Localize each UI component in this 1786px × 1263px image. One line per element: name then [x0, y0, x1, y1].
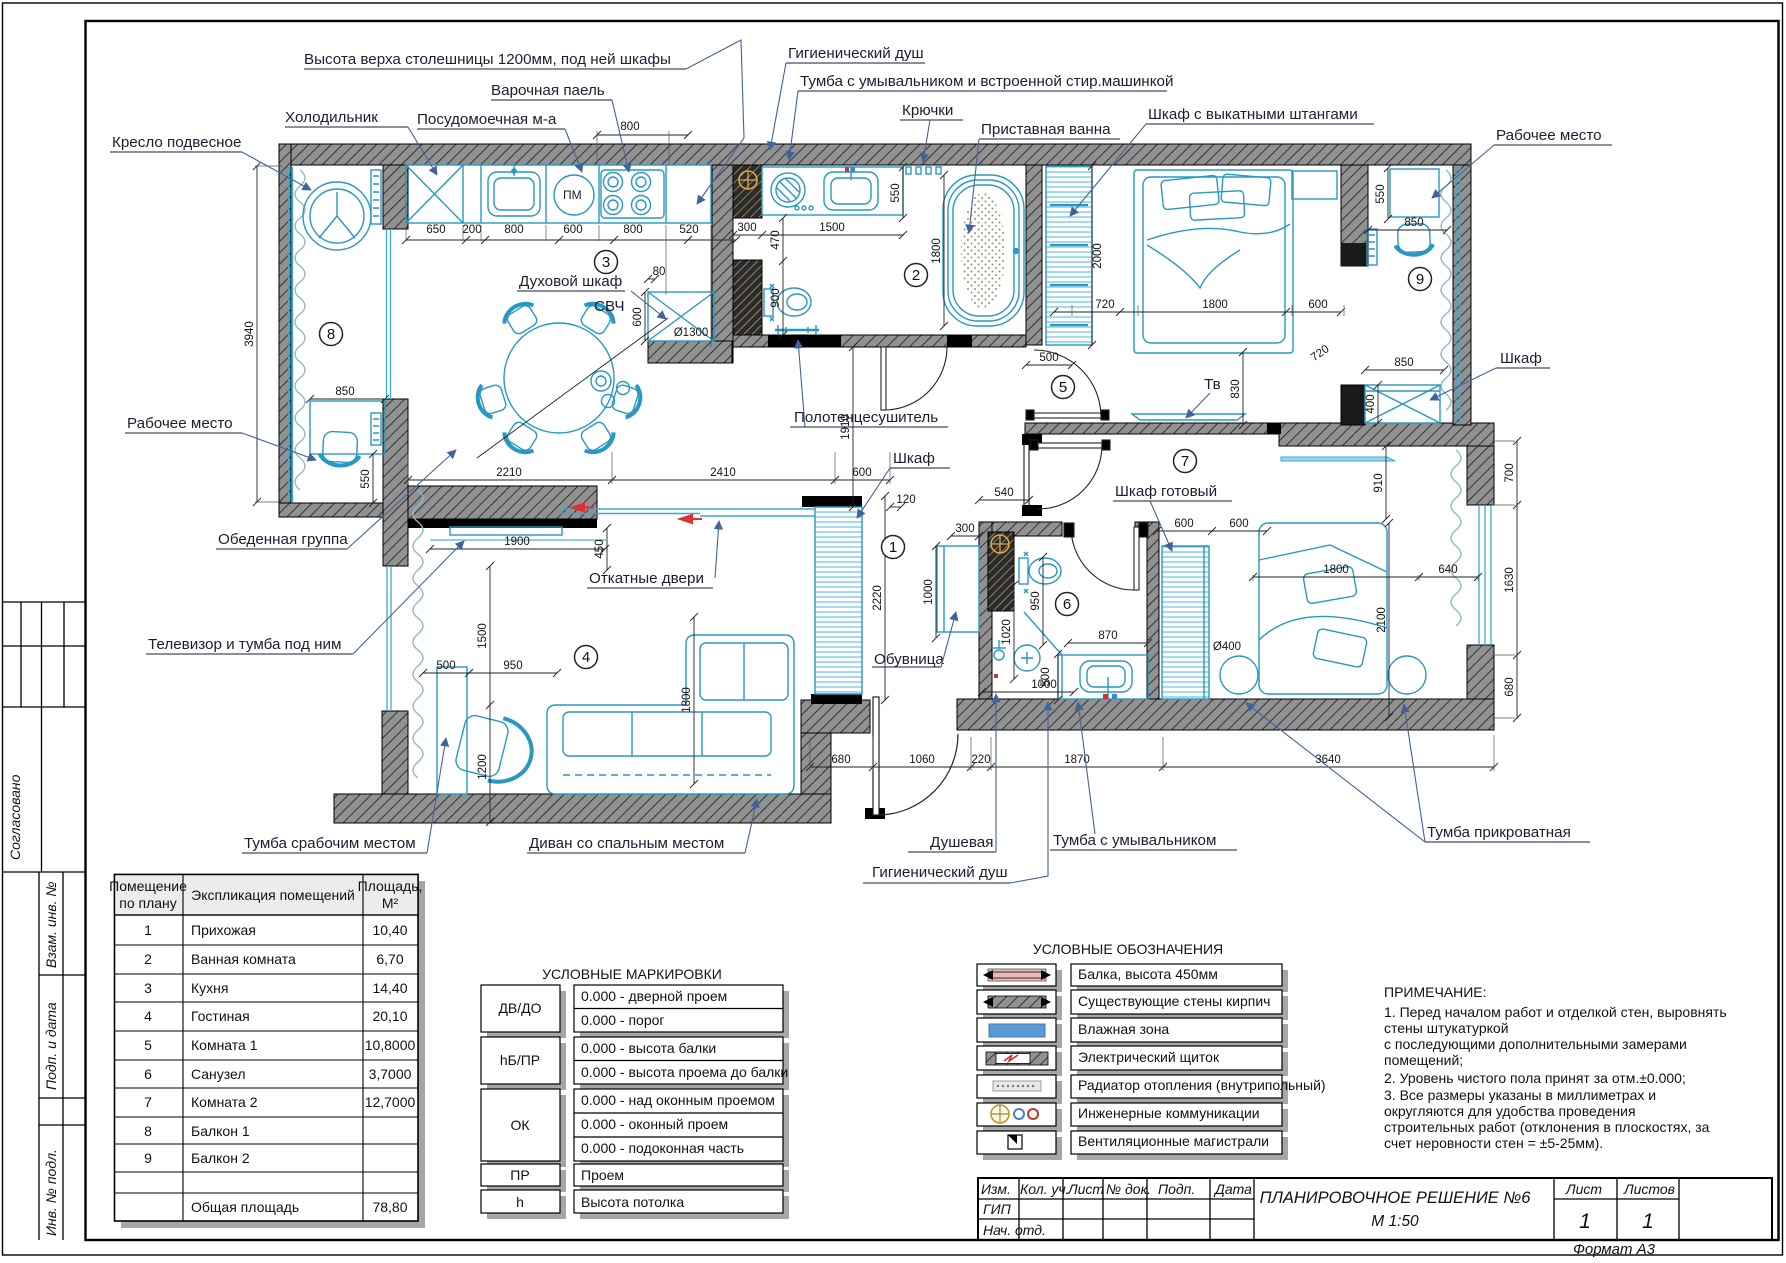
svg-text:УСЛОВНЫЕ МАРКИРОВКИ: УСЛОВНЫЕ МАРКИРОВКИ — [542, 966, 722, 982]
svg-text:3. Все размеры указаны в: 3. Все размеры указаны в миллиметрах и — [1384, 1087, 1656, 1103]
svg-text:8: 8 — [144, 1123, 152, 1139]
svg-text:800: 800 — [504, 224, 523, 236]
svg-text:с последующими дополнительными: с последующими дополнительными замерами — [1384, 1036, 1687, 1052]
svg-text:12,7000: 12,7000 — [365, 1094, 416, 1110]
svg-text:6,70: 6,70 — [376, 951, 403, 967]
svg-text:680: 680 — [831, 754, 850, 766]
svg-text:Дата: Дата — [1213, 1181, 1252, 1197]
svg-text:Влажная зона: Влажная зона — [1078, 1021, 1169, 1037]
svg-text:600: 600 — [1174, 518, 1193, 530]
svg-text:8: 8 — [327, 326, 335, 343]
svg-text:800: 800 — [623, 224, 642, 236]
svg-text:550: 550 — [1375, 184, 1387, 203]
svg-text:Диван со спальным местом: Диван со спальным местом — [529, 835, 724, 852]
svg-text:Подп. и дата: Подп. и дата — [43, 1002, 59, 1090]
svg-text:7: 7 — [1181, 453, 1189, 470]
svg-text:0.000 - дверной проем: 0.000 - дверной проем — [581, 988, 727, 1004]
svg-text:Высота потолка: Высота потолка — [581, 1194, 684, 1210]
svg-text:3940: 3940 — [244, 321, 256, 347]
svg-text:600: 600 — [632, 307, 644, 326]
svg-text:Комната 1: Комната 1 — [191, 1037, 258, 1053]
svg-text:6: 6 — [144, 1066, 152, 1082]
svg-text:Гигиенический душ: Гигиенический душ — [872, 864, 1008, 881]
svg-text:720: 720 — [1095, 299, 1114, 311]
svg-text:Ø1300: Ø1300 — [674, 327, 709, 339]
svg-text:hБ/ПР: hБ/ПР — [500, 1052, 540, 1068]
svg-text:Шкаф с выкатными штангами: Шкаф с выкатными штангами — [1148, 106, 1358, 123]
svg-text:Тумба прикроватная: Тумба прикроватная — [1427, 824, 1571, 841]
svg-text:20,10: 20,10 — [372, 1008, 407, 1024]
svg-text:ПЛАНИРОВОЧНОЕ РЕШЕНИЕ №6: ПЛАНИРОВОЧНОЕ РЕШЕНИЕ №6 — [1260, 1189, 1532, 1207]
svg-text:1: 1 — [889, 539, 897, 556]
svg-text:Духовой шкаф: Духовой шкаф — [519, 273, 622, 290]
svg-text:600: 600 — [1308, 299, 1327, 311]
svg-text:1000: 1000 — [923, 579, 935, 605]
svg-text:ПРИМЕЧАНИЕ:: ПРИМЕЧАНИЕ: — [1384, 984, 1487, 1000]
svg-text:600: 600 — [852, 467, 871, 479]
svg-text:540: 540 — [994, 487, 1013, 499]
svg-text:600: 600 — [1229, 518, 1248, 530]
svg-text:78,80: 78,80 — [372, 1199, 407, 1215]
svg-text:Обувница: Обувница — [874, 651, 944, 668]
svg-text:Согласовано: Согласовано — [7, 774, 23, 860]
svg-text:Радиатор отопления (внутриполь: Радиатор отопления (внутрипольный) — [1078, 1077, 1326, 1093]
svg-text:520: 520 — [679, 224, 698, 236]
svg-text:Прихожая: Прихожая — [191, 922, 256, 938]
svg-text:0.000 - высота балки: 0.000 - высота балки — [581, 1040, 716, 1056]
svg-text:850: 850 — [1404, 217, 1423, 229]
svg-text:1200: 1200 — [477, 754, 489, 780]
svg-text:Лист: Лист — [1565, 1181, 1602, 1197]
svg-text:Существующие стены кирпич: Существующие стены кирпич — [1078, 993, 1270, 1009]
svg-text:Площадь,: Площадь, — [358, 878, 423, 894]
svg-text:Тумба с умывальником: Тумба с умывальником — [1053, 832, 1216, 849]
svg-text:Общая площадь: Общая площадь — [191, 1199, 299, 1215]
svg-text:1500: 1500 — [819, 222, 845, 234]
svg-text:9: 9 — [144, 1150, 152, 1166]
svg-text:10,40: 10,40 — [372, 922, 407, 938]
svg-text:1800: 1800 — [1323, 564, 1349, 576]
svg-text:Электрический щиток: Электрический щиток — [1078, 1049, 1220, 1065]
svg-text:2220: 2220 — [872, 585, 884, 611]
svg-text:1800: 1800 — [931, 238, 943, 264]
svg-text:2000: 2000 — [1092, 243, 1104, 269]
svg-text:6: 6 — [1063, 596, 1071, 613]
svg-text:640: 640 — [1438, 564, 1457, 576]
svg-text:1: 1 — [1642, 1210, 1654, 1233]
svg-text:1: 1 — [1579, 1210, 1591, 1233]
svg-text:Вентиляционные магистрали: Вентиляционные магистрали — [1078, 1133, 1269, 1149]
svg-text:Холодильник: Холодильник — [285, 109, 378, 126]
svg-text:Гостиная: Гостиная — [191, 1008, 250, 1024]
svg-text:300: 300 — [955, 523, 974, 535]
svg-text:Листов: Листов — [1623, 1181, 1675, 1197]
svg-text:14,40: 14,40 — [372, 980, 407, 996]
svg-text:1900: 1900 — [504, 536, 530, 548]
svg-text:Лист: Лист — [1067, 1181, 1104, 1197]
svg-text:стены штукатуркой: стены штукатуркой — [1384, 1020, 1509, 1036]
svg-text:650: 650 — [426, 224, 445, 236]
svg-text:Шкаф готовый: Шкаф готовый — [1115, 483, 1217, 500]
svg-text:Комната 2: Комната 2 — [191, 1094, 258, 1110]
svg-text:Кол. уч.: Кол. уч. — [1020, 1181, 1070, 1197]
svg-text:950: 950 — [503, 660, 522, 672]
svg-text:1630: 1630 — [1504, 567, 1516, 593]
svg-text:ПР: ПР — [510, 1167, 529, 1183]
svg-text:800: 800 — [620, 121, 639, 133]
svg-text:900: 900 — [770, 288, 782, 307]
svg-text:счет неровности стен = ±5-25мм: счет неровности стен = ±5-25мм). — [1384, 1135, 1603, 1151]
svg-text:7: 7 — [144, 1094, 152, 1110]
svg-text:700: 700 — [1504, 463, 1516, 482]
svg-text:Кресло подвесное: Кресло подвесное — [112, 134, 241, 151]
svg-text:Инженерные коммуникации: Инженерные коммуникации — [1078, 1105, 1260, 1121]
svg-text:220: 220 — [971, 754, 990, 766]
svg-text:Рабочее место: Рабочее место — [127, 415, 233, 432]
svg-text:Приставная ванна: Приставная ванна — [981, 121, 1111, 138]
svg-text:по плану: по плану — [119, 895, 177, 911]
svg-text:2100: 2100 — [1376, 607, 1388, 633]
svg-text:Нач. отд.: Нач. отд. — [983, 1222, 1046, 1238]
svg-text:950: 950 — [1030, 591, 1042, 610]
svg-text:Тв: Тв — [1204, 376, 1221, 393]
svg-text:680: 680 — [1504, 677, 1516, 696]
svg-text:3,7000: 3,7000 — [369, 1066, 412, 1082]
svg-text:Шкаф: Шкаф — [893, 450, 935, 467]
svg-text:2210: 2210 — [496, 467, 522, 479]
svg-text:1800: 1800 — [1202, 299, 1228, 311]
svg-text:4: 4 — [144, 1008, 152, 1024]
svg-text:2: 2 — [912, 267, 920, 284]
svg-text:830: 830 — [1230, 379, 1242, 398]
svg-text:Ванная комната: Ванная комната — [191, 951, 296, 967]
svg-text:3: 3 — [602, 254, 610, 271]
svg-text:Шкаф: Шкаф — [1500, 350, 1542, 367]
svg-text:Балка, высота 450мм: Балка, высота 450мм — [1078, 966, 1218, 982]
svg-text:2: 2 — [144, 951, 152, 967]
svg-text:910: 910 — [1373, 473, 1385, 492]
svg-text:200: 200 — [462, 224, 481, 236]
svg-text:Откатные двери: Откатные двери — [589, 570, 704, 587]
svg-text:Душевая: Душевая — [930, 834, 993, 851]
svg-text:0.000 - порог: 0.000 - порог — [581, 1012, 665, 1028]
svg-text:400: 400 — [1365, 394, 1377, 413]
svg-text:ДВ/ДО: ДВ/ДО — [498, 1000, 541, 1016]
svg-text:Рабочее место: Рабочее место — [1496, 127, 1602, 144]
svg-text:ОК: ОК — [510, 1117, 530, 1133]
svg-text:М²: М² — [382, 895, 399, 911]
svg-text:Санузел: Санузел — [191, 1066, 246, 1082]
svg-text:Кухня: Кухня — [191, 980, 228, 996]
svg-text:550: 550 — [360, 469, 372, 488]
svg-text:Обеденная группа: Обеденная группа — [218, 531, 348, 548]
svg-text:Ø400: Ø400 — [1213, 641, 1241, 653]
svg-text:120: 120 — [896, 494, 915, 506]
svg-text:0.000 - высота проема до балки: 0.000 - высота проема до балки — [581, 1064, 788, 1080]
svg-text:Подп.: Подп. — [1158, 1181, 1195, 1197]
svg-text:Телевизор и тумба под ним: Телевизор и тумба под ним — [148, 636, 341, 653]
svg-text:850: 850 — [1394, 357, 1413, 369]
svg-text:Балкон 2: Балкон 2 — [191, 1150, 250, 1166]
svg-text:850: 850 — [335, 386, 354, 398]
svg-text:Тумба с умывальником и встроен: Тумба с умывальником и встроенной стир.м… — [800, 73, 1173, 90]
svg-text:2. Уровень чистого пола принят: 2. Уровень чистого пола принят за отм.±0… — [1384, 1070, 1686, 1086]
svg-text:300: 300 — [737, 222, 756, 234]
svg-text:h: h — [516, 1194, 524, 1210]
svg-text:Балкон 1: Балкон 1 — [191, 1123, 250, 1139]
svg-text:3: 3 — [144, 980, 152, 996]
svg-text:Высота верха столешницы 1200мм: Высота верха столешницы 1200мм, под ней … — [304, 51, 671, 68]
svg-text:Крючки: Крючки — [902, 102, 953, 119]
svg-text:помещений;: помещений; — [1384, 1052, 1463, 1068]
svg-text:0.000 - подоконная часть: 0.000 - подоконная часть — [581, 1140, 744, 1156]
svg-text:450: 450 — [594, 539, 606, 558]
svg-text:Варочная паель: Варочная паель — [491, 82, 605, 99]
svg-text:Полотенцесушитель: Полотенцесушитель — [794, 409, 938, 426]
svg-text:Проем: Проем — [581, 1167, 624, 1183]
svg-text:500: 500 — [1039, 352, 1058, 364]
svg-text:УСЛОВНЫЕ ОБОЗНАЧЕНИЯ: УСЛОВНЫЕ ОБОЗНАЧЕНИЯ — [1033, 941, 1223, 957]
svg-text:строительных работ (отклонения: строительных работ (отклонения в плоскос… — [1384, 1119, 1710, 1135]
svg-text:Гигиенический душ: Гигиенический душ — [788, 45, 924, 62]
svg-text:СВЧ: СВЧ — [594, 298, 625, 315]
svg-text:500: 500 — [436, 660, 455, 672]
svg-text:80: 80 — [653, 266, 666, 278]
svg-text:870: 870 — [1098, 630, 1117, 642]
svg-text:470: 470 — [770, 230, 782, 249]
svg-text:5: 5 — [1059, 379, 1067, 396]
svg-text:1500: 1500 — [477, 623, 489, 649]
svg-text:0.000 - оконный проем: 0.000 - оконный проем — [581, 1116, 728, 1132]
svg-text:1020: 1020 — [1001, 619, 1013, 645]
svg-text:№ док.: № док. — [1106, 1181, 1151, 1197]
svg-text:1800: 1800 — [681, 687, 693, 713]
svg-text:Помещение: Помещение — [109, 878, 187, 894]
svg-text:ГИП: ГИП — [983, 1201, 1012, 1217]
svg-text:550: 550 — [890, 183, 902, 202]
svg-text:ПМ: ПМ — [563, 188, 582, 202]
svg-text:округляются для удобства пр: округляются для удобства проведения — [1384, 1103, 1636, 1119]
svg-text:Тумба срабочим местом: Тумба срабочим местом — [244, 835, 416, 852]
svg-text:5: 5 — [144, 1037, 152, 1053]
svg-text:Изм.: Изм. — [981, 1181, 1011, 1197]
svg-text:1. Перед началом работ и отдел: 1. Перед началом работ и отделкой стен, … — [1384, 1004, 1727, 1020]
svg-text:М 1:50: М 1:50 — [1371, 1213, 1419, 1230]
svg-text:2410: 2410 — [710, 467, 736, 479]
svg-text:Посудомоечная м-а: Посудомоечная м-а — [417, 111, 557, 128]
svg-text:600: 600 — [563, 224, 582, 236]
svg-text:Взам. инв. №: Взам. инв. № — [43, 881, 59, 968]
svg-text:1: 1 — [144, 922, 152, 938]
svg-text:10,8000: 10,8000 — [365, 1037, 416, 1053]
svg-text:4: 4 — [582, 649, 590, 666]
svg-text:1060: 1060 — [909, 754, 935, 766]
svg-text:Инв. № подл.: Инв. № подл. — [43, 1149, 59, 1236]
svg-text:Экспликация помещений: Экспликация помещений — [191, 887, 355, 903]
svg-text:0.000 - над оконным проемом: 0.000 - над оконным проемом — [581, 1092, 775, 1108]
svg-text:9: 9 — [1416, 271, 1424, 288]
svg-text:500: 500 — [1040, 667, 1052, 686]
svg-text:Формат А3: Формат А3 — [1573, 1241, 1656, 1258]
